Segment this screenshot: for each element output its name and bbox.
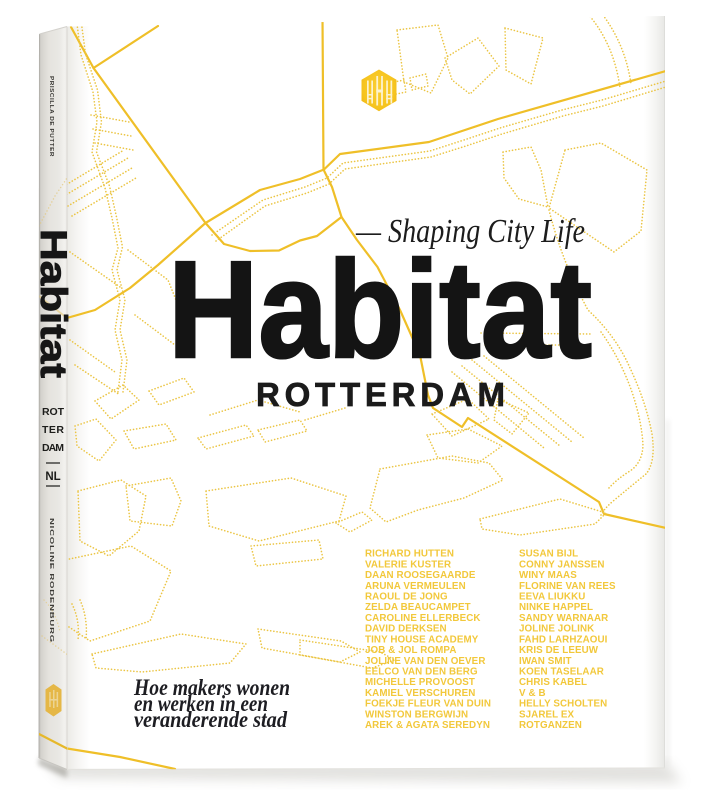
svg-text:IWAN SMIT: IWAN SMIT <box>519 656 572 667</box>
svg-text:HELLY SCHOLTEN: HELLY SCHOLTEN <box>519 699 607 710</box>
svg-text:RAOUL DE JONG: RAOUL DE JONG <box>365 592 448 603</box>
svg-text:KOEN TASELAAR: KOEN TASELAAR <box>519 667 604 678</box>
svg-text:SJAREL EX: SJAREL EX <box>519 709 575 720</box>
svg-text:TINY HOUSE ACADEMY: TINY HOUSE ACADEMY <box>365 634 479 645</box>
svg-text:SUSAN BIJL: SUSAN BIJL <box>519 549 578 560</box>
svg-text:ROTTERDAM: ROTTERDAM <box>256 376 505 413</box>
svg-text:SANDY WARNAAR: SANDY WARNAAR <box>519 613 608 624</box>
svg-text:FAHD LARHZAOUI: FAHD LARHZAOUI <box>519 634 608 645</box>
svg-text:FLORINE VAN REES: FLORINE VAN REES <box>519 581 616 592</box>
svg-text:AREK & AGATA SEREDYN: AREK & AGATA SEREDYN <box>365 720 490 731</box>
svg-text:FOEKJE FLEUR VAN DUIN: FOEKJE FLEUR VAN DUIN <box>365 699 491 710</box>
svg-text:CHRIS KABEL: CHRIS KABEL <box>519 677 587 688</box>
svg-text:ROTGANZEN: ROTGANZEN <box>519 720 582 731</box>
svg-text:JOB & JOL ROMPA: JOB & JOL ROMPA <box>365 645 457 656</box>
svg-text:WINSTON BERGWIJN: WINSTON BERGWIJN <box>365 709 468 720</box>
svg-text:ZELDA BEAUCAMPET: ZELDA BEAUCAMPET <box>365 602 471 613</box>
svg-text:JOLINE JOLINK: JOLINE JOLINK <box>519 624 594 635</box>
svg-text:CAROLINE ELLERBECK: CAROLINE ELLERBECK <box>365 613 481 624</box>
svg-text:WINY MAAS: WINY MAAS <box>519 570 577 581</box>
svg-text:MICHELLE PROVOOST: MICHELLE PROVOOST <box>365 677 475 688</box>
svg-text:ARUNA VERMEULEN: ARUNA VERMEULEN <box>365 581 466 592</box>
svg-text:Habitat: Habitat <box>168 233 592 387</box>
svg-text:DAM: DAM <box>42 442 64 454</box>
svg-text:CONNY JANSSEN: CONNY JANSSEN <box>519 559 605 570</box>
svg-text:V & B: V & B <box>519 688 546 699</box>
svg-text:EELCO VAN DEN BERG: EELCO VAN DEN BERG <box>365 667 478 678</box>
svg-text:veranderende stad: veranderende stad <box>134 707 287 732</box>
svg-text:TER: TER <box>42 424 64 436</box>
svg-text:KRIS DE LEEUW: KRIS DE LEEUW <box>519 645 599 656</box>
svg-text:KAMIEL VERSCHUREN: KAMIEL VERSCHUREN <box>365 688 475 699</box>
svg-text:NL: NL <box>45 471 60 483</box>
svg-text:EEVA LIUKKU: EEVA LIUKKU <box>519 592 585 603</box>
svg-text:ROT: ROT <box>42 406 65 418</box>
svg-text:NINKE HAPPEL: NINKE HAPPEL <box>519 602 593 613</box>
svg-text:PRISCILLA DE PUTTER: PRISCILLA DE PUTTER <box>48 76 54 157</box>
svg-text:DAVID DERKSEN: DAVID DERKSEN <box>365 624 447 635</box>
svg-text:JOLINE VAN DEN OEVER: JOLINE VAN DEN OEVER <box>365 656 486 667</box>
svg-text:RICHARD HUTTEN: RICHARD HUTTEN <box>365 549 454 560</box>
svg-text:Habitat: Habitat <box>33 229 74 378</box>
svg-text:VALERIE KUSTER: VALERIE KUSTER <box>365 559 451 570</box>
svg-text:NICOLINE RODENBURG: NICOLINE RODENBURG <box>48 518 54 643</box>
svg-text:DAAN ROOSEGAARDE: DAAN ROOSEGAARDE <box>365 570 476 581</box>
